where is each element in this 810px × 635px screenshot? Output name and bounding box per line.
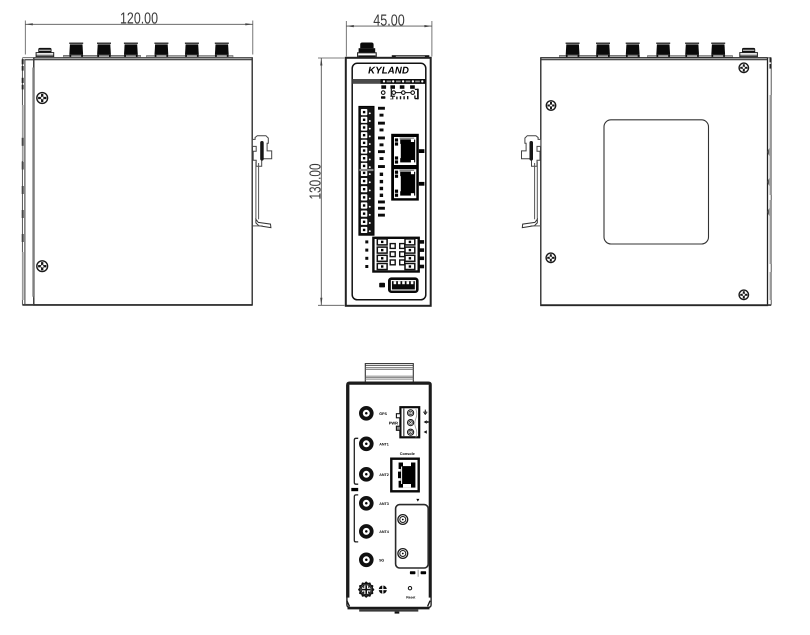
svg-text:Reset: Reset xyxy=(406,595,416,599)
svg-text:45.00: 45.00 xyxy=(373,12,405,29)
svg-text:ANT4: ANT4 xyxy=(379,530,390,534)
svg-text:Console: Console xyxy=(400,452,415,456)
svg-text:120.00: 120.00 xyxy=(120,11,158,28)
svg-text:KYLAND: KYLAND xyxy=(368,66,409,77)
svg-text:GPS: GPS xyxy=(379,412,387,416)
svg-text:ANT1: ANT1 xyxy=(379,443,389,447)
svg-text:ANT3: ANT3 xyxy=(379,502,389,506)
svg-text:ANT2: ANT2 xyxy=(379,473,389,477)
svg-text:130.00: 130.00 xyxy=(308,163,325,199)
svg-text:PWR: PWR xyxy=(389,421,398,426)
svg-text:5G: 5G xyxy=(379,559,384,563)
